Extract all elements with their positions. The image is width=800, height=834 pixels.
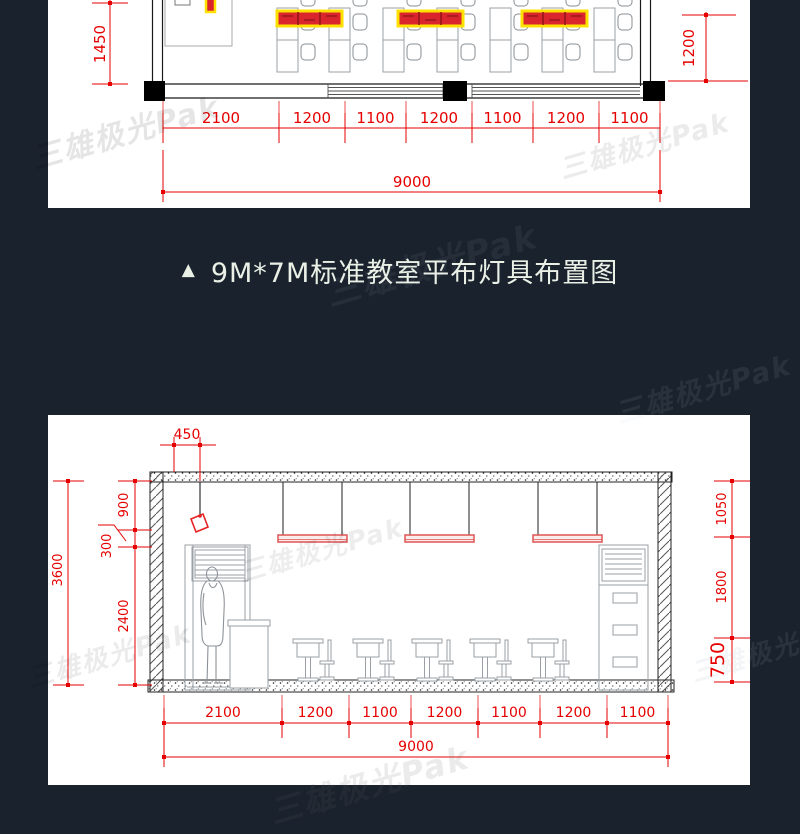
section-dim-seg1: 2100	[205, 705, 241, 721]
teacher-desk-area	[165, 0, 232, 46]
section-dim-450: 450	[174, 427, 201, 443]
plan-dim-seg6: 1200	[547, 109, 585, 127]
plan-dim-seg1: 2100	[202, 109, 240, 127]
section-dim-seg7: 1100	[620, 705, 656, 721]
section-dim-1050: 1050	[715, 492, 730, 525]
plan-bottom-wall	[144, 81, 665, 101]
podium	[228, 620, 270, 688]
window-right	[472, 84, 640, 98]
person-figure	[201, 567, 225, 683]
section-drawing: 450 900 300 2400 3600 1050 1800 750 2100…	[48, 415, 750, 785]
plan-dim-seg3: 1100	[356, 109, 394, 127]
caption: ▲ 9M*7M标准教室平布灯具布置图	[0, 250, 800, 290]
window-left	[328, 84, 443, 98]
section-dim-seg6: 1200	[556, 705, 592, 721]
pendant-lamp	[191, 482, 208, 532]
section-dim-seg2: 1200	[298, 705, 334, 721]
plan-dim-seg5: 1100	[483, 109, 521, 127]
plan-drawing: 1450 1200 2100 1200 1100 1200 1100 1200 …	[48, 0, 750, 208]
column	[144, 81, 165, 101]
column	[443, 81, 467, 101]
desk-rows	[293, 639, 569, 681]
section-dim-1800: 1800	[715, 570, 730, 603]
section-dim-300: 300	[100, 534, 115, 559]
ceiling-slab	[150, 472, 672, 482]
plan-dim-right: 1200	[680, 29, 698, 67]
plan-dim-overall: 9000	[393, 173, 431, 191]
section-dim-overall: 9000	[398, 739, 434, 755]
plan-view-panel: 1450 1200 2100 1200 1100 1200 1100 1200 …	[48, 0, 750, 208]
left-wall	[150, 472, 163, 692]
section-dim-3600: 3600	[51, 553, 66, 586]
teacher-light-fixture	[206, 0, 215, 12]
page: { "watermark_text": "三雄极光Pak", "caption"…	[0, 0, 800, 800]
section-dim-750: 750	[707, 642, 729, 678]
section-dim-2400: 2400	[117, 599, 132, 632]
triangle-marker-icon: ▲	[182, 260, 195, 280]
plan-left-wall	[153, 0, 163, 86]
section-dim-900: 900	[117, 493, 132, 518]
plan-dim-seg4: 1200	[420, 109, 458, 127]
section-dim-seg5: 1100	[491, 705, 527, 721]
plan-right-wall	[641, 0, 651, 86]
suspended-luminaires	[278, 482, 602, 542]
section-view-panel: 450 900 300 2400 3600 1050 1800 750 2100…	[48, 415, 750, 785]
section-dim-seg3: 1100	[362, 705, 398, 721]
right-wall	[658, 472, 671, 692]
plan-dim-left: 1450	[91, 25, 109, 63]
plan-dim-seg7: 1100	[610, 109, 648, 127]
caption-text: 9M*7M标准教室平布灯具布置图	[211, 251, 618, 290]
plan-dim-seg2: 1200	[293, 109, 331, 127]
plan-light-fixtures	[277, 11, 587, 26]
section-dim-seg4: 1200	[427, 705, 463, 721]
column	[643, 81, 665, 101]
right-cabinet	[599, 545, 648, 690]
